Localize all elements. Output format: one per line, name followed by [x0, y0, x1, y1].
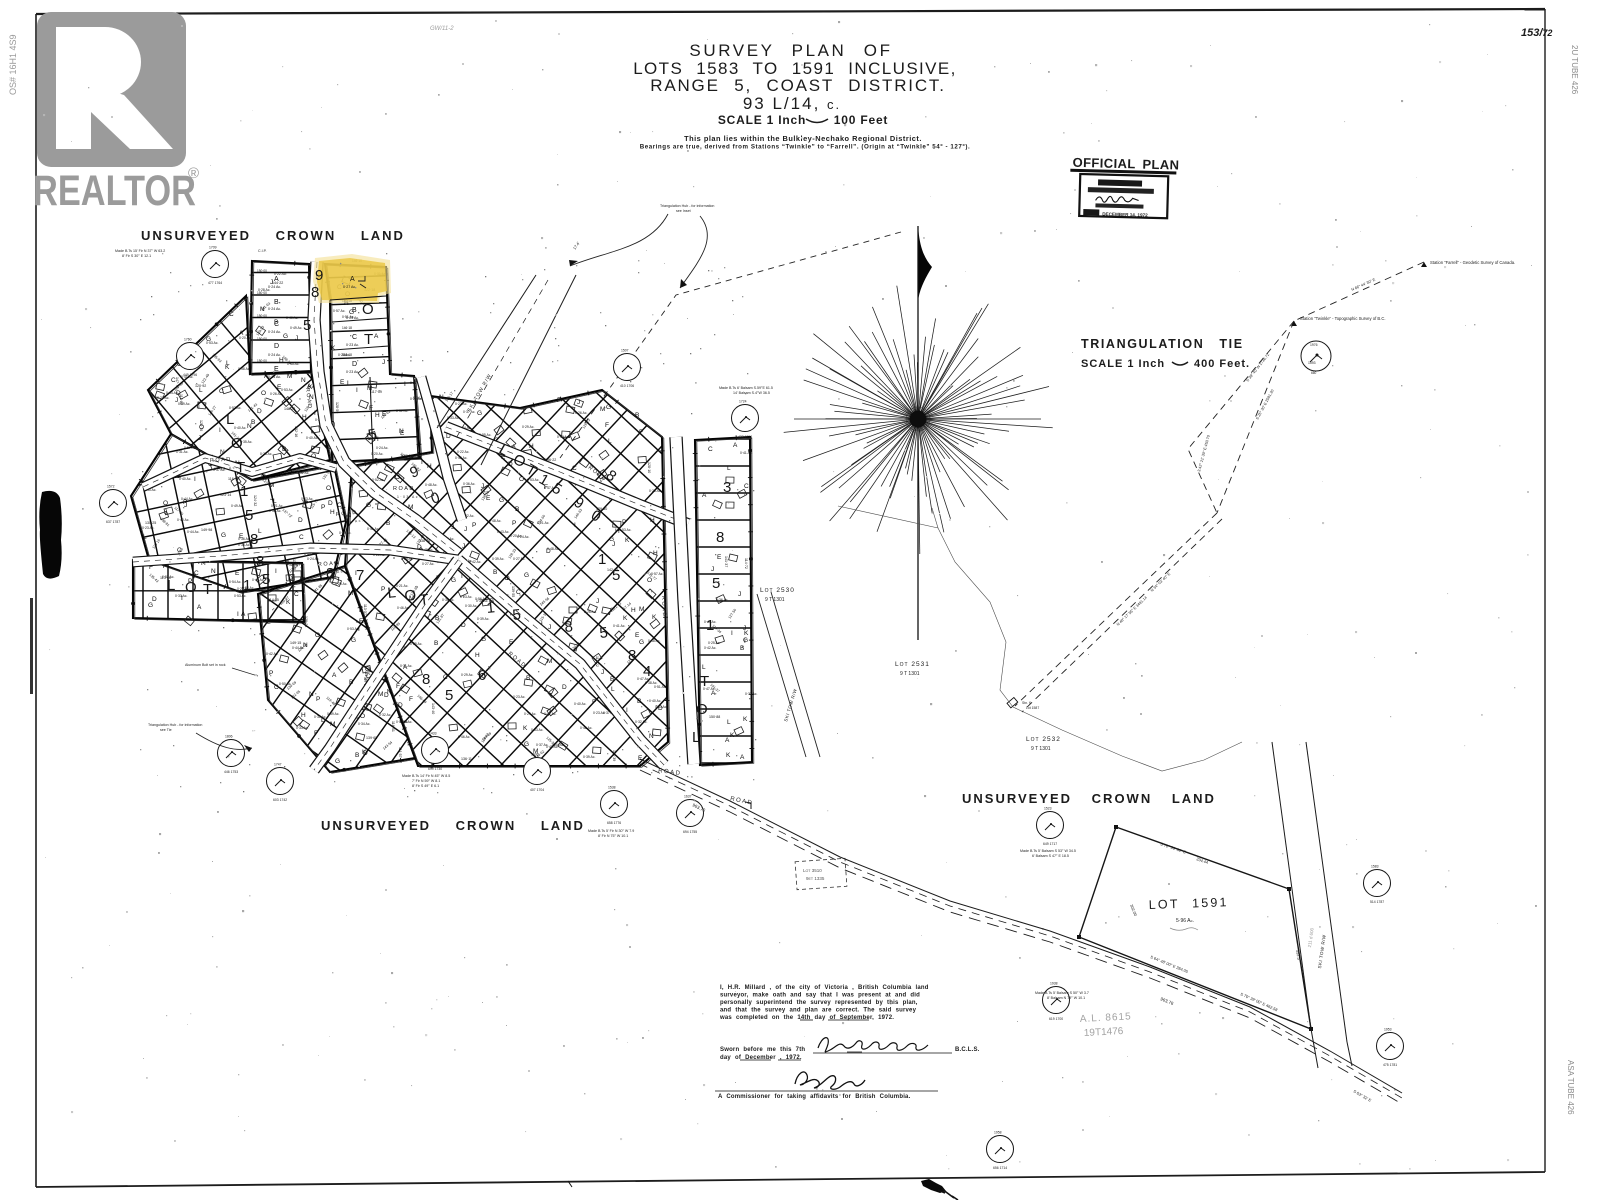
svg-text:I: I: [574, 522, 576, 529]
svg-text:0·52 Ac.: 0·52 Ac.: [229, 406, 241, 410]
svg-text:I: I: [744, 638, 746, 645]
svg-text:410 1706: 410 1706: [620, 384, 634, 388]
svg-text:O: O: [519, 476, 524, 483]
svg-text:A: A: [241, 611, 246, 618]
svg-text:5: 5: [612, 567, 620, 584]
svg-text:P: P: [622, 519, 626, 526]
svg-text:446 1753: 446 1753: [224, 770, 238, 774]
svg-text:0·23 Ac.: 0·23 Ac.: [593, 711, 605, 715]
svg-text:I: I: [261, 474, 263, 481]
svg-text:0·41 Ac.: 0·41 Ac.: [613, 624, 625, 628]
svg-text:E: E: [400, 430, 405, 437]
svg-text:L: L: [611, 686, 615, 693]
svg-text:I: I: [219, 427, 221, 434]
svg-text:T: T: [236, 459, 245, 476]
svg-text:B: B: [493, 569, 497, 576]
svg-text:P: P: [472, 522, 476, 529]
svg-text:C: C: [299, 534, 304, 541]
svg-text:0·48 Ac.: 0·48 Ac.: [425, 483, 437, 487]
svg-text:0·53 Ac.: 0·53 Ac.: [531, 728, 543, 732]
svg-text:113·22: 113·22: [595, 656, 599, 667]
svg-text:surveyor, make oath and say th: surveyor, make oath and say that I was p…: [720, 993, 920, 999]
svg-text:F: F: [557, 397, 561, 404]
svg-text:M: M: [600, 406, 605, 413]
svg-text:C: C: [219, 388, 224, 395]
svg-text:J: J: [270, 279, 273, 286]
svg-text:I: I: [356, 387, 358, 394]
svg-text:5: 5: [445, 687, 453, 704]
svg-text:4: 4: [643, 663, 651, 680]
svg-text:603 1742: 603 1742: [273, 798, 287, 802]
svg-text:O: O: [362, 301, 374, 318]
svg-text:L: L: [199, 387, 203, 394]
svg-text:132·16: 132·16: [294, 426, 298, 437]
svg-text:5: 5: [512, 606, 522, 624]
svg-text:B: B: [637, 698, 641, 705]
svg-text:Lot 1587: Lot 1587: [1026, 706, 1039, 710]
svg-text:0·54 Ac.: 0·54 Ac.: [229, 580, 241, 584]
svg-text:1·03 Ac.: 1·03 Ac.: [397, 495, 421, 499]
svg-text:0·40 Ac.: 0·40 Ac.: [306, 436, 318, 440]
svg-text:G: G: [524, 572, 529, 579]
svg-text:A: A: [725, 737, 730, 744]
svg-text:N: N: [211, 568, 216, 575]
svg-text:O: O: [326, 485, 331, 492]
svg-text:E: E: [239, 533, 244, 540]
svg-text:TRIANGULATION TIE: TRIANGULATION TIE: [1081, 337, 1244, 351]
svg-text:1: 1: [243, 577, 251, 594]
svg-text:C.I.P.: C.I.P.: [258, 249, 267, 253]
svg-text:1572: 1572: [107, 485, 115, 489]
svg-text:P: P: [316, 696, 320, 703]
svg-text:0·48 Ac.: 0·48 Ac.: [547, 547, 559, 551]
svg-text:T: T: [203, 581, 212, 598]
svg-text:Made B.Ts 5' Balsam S 50° W: Made B.Ts 5' Balsam S 50° W 3.7: [1035, 991, 1089, 995]
svg-text:I: I: [314, 410, 316, 417]
svg-text:0·24 Ac.: 0·24 Ac.: [524, 712, 536, 716]
svg-text:J: J: [601, 669, 604, 676]
svg-text:G: G: [148, 602, 153, 609]
svg-text:153/72: 153/72: [1521, 27, 1552, 39]
svg-text:658 1776: 658 1776: [607, 821, 621, 825]
svg-text:0·36 Ac.: 0·36 Ac.: [442, 598, 454, 602]
svg-text:0·23 Ac.: 0·23 Ac.: [346, 370, 359, 374]
svg-text:0·40 Ac.: 0·40 Ac.: [179, 477, 191, 481]
svg-text:G: G: [639, 639, 644, 646]
svg-text:E: E: [340, 379, 345, 386]
svg-text:D: D: [257, 408, 262, 415]
svg-text:0·22 Ac.: 0·22 Ac.: [274, 272, 286, 276]
svg-text:L: L: [143, 534, 147, 541]
svg-text:G: G: [477, 410, 482, 417]
svg-text:1: 1: [598, 551, 606, 568]
svg-text:2U TUBE 426: 2U TUBE 426: [1570, 45, 1579, 95]
svg-text:5: 5: [599, 624, 609, 642]
svg-text:Stn. K: Stn. K: [1022, 701, 1032, 705]
svg-text:111·57: 111·57: [398, 747, 402, 758]
svg-text:0·30 Ac.: 0·30 Ac.: [465, 604, 477, 608]
svg-text:I: I: [611, 607, 613, 614]
svg-text:0·40 Ac.: 0·40 Ac.: [455, 456, 467, 460]
svg-text:433 1714: 433 1714: [738, 435, 752, 439]
svg-text:0·23 Ac.: 0·23 Ac.: [346, 343, 359, 347]
svg-text:I: I: [194, 476, 196, 483]
svg-text:5: 5: [262, 571, 270, 588]
svg-text:1709: 1709: [209, 246, 217, 250]
svg-text:N: N: [247, 423, 252, 430]
svg-text:LOT 1591: LOT 1591: [1149, 895, 1229, 912]
svg-text:M: M: [330, 721, 335, 728]
svg-text:1724: 1724: [739, 400, 747, 404]
svg-text:0·29 Ac.: 0·29 Ac.: [461, 673, 473, 677]
svg-text:C: C: [352, 334, 357, 341]
svg-text:O: O: [315, 632, 320, 639]
svg-text:G: G: [283, 333, 288, 340]
svg-text:1747: 1747: [274, 763, 282, 767]
svg-text:T: T: [700, 673, 709, 690]
svg-text:0·53 Ac.: 0·53 Ac.: [234, 594, 246, 598]
svg-text:0·27 Ac.: 0·27 Ac.: [513, 557, 525, 561]
svg-text:150·00: 150·00: [257, 314, 267, 318]
svg-text:115·80: 115·80: [179, 394, 183, 405]
svg-text:93 L/14, c.: 93 L/14, c.: [743, 94, 841, 113]
svg-text:9 T 1301: 9 T 1301: [765, 597, 785, 603]
svg-text:400 Feet.: 400 Feet.: [1194, 358, 1250, 370]
svg-text:6' Balsam S 47° E 18.5: 6' Balsam S 47° E 18.5: [1032, 854, 1069, 858]
svg-text:REALTOR: REALTOR: [33, 167, 196, 214]
svg-text:H: H: [475, 652, 480, 659]
svg-text:O: O: [404, 587, 417, 605]
svg-text:B: B: [274, 319, 278, 326]
svg-text:407 1704: 407 1704: [530, 788, 544, 792]
svg-text:150·00: 150·00: [257, 359, 267, 363]
svg-text:8: 8: [256, 553, 264, 570]
svg-text:C: C: [443, 674, 448, 681]
svg-text:L: L: [167, 577, 175, 594]
svg-text:0·40 Ac.: 0·40 Ac.: [574, 702, 586, 706]
svg-text:475 1781: 475 1781: [1383, 1063, 1397, 1067]
svg-text:0·24 Ac.: 0·24 Ac.: [268, 375, 281, 379]
svg-text:0·43 Ac.: 0·43 Ac.: [339, 531, 351, 535]
svg-text:B: B: [355, 752, 359, 759]
svg-text:7' Fir N 59° W 8.1: 7' Fir N 59° W 8.1: [412, 779, 440, 783]
svg-text:699 1730: 699 1730: [428, 767, 442, 771]
svg-text:0·25 Ac.: 0·25 Ac.: [410, 642, 422, 646]
svg-text:Made B.Ts 14' Fir N 45° W 8: Made B.Ts 14' Fir N 45° W 8.5: [402, 774, 450, 778]
svg-text:K: K: [286, 599, 291, 606]
svg-text:B: B: [526, 675, 530, 682]
svg-text:0·42 Ac.: 0·42 Ac.: [266, 652, 278, 656]
svg-text:K: K: [523, 725, 528, 732]
svg-text:E: E: [359, 618, 364, 625]
svg-text:Made B.Ts 5' Balsam S 53° W: Made B.Ts 5' Balsam S 53° W 34.5: [1020, 849, 1076, 853]
svg-text:0·27 Ac.: 0·27 Ac.: [343, 285, 356, 289]
svg-text:RANGE 5, COAST DISTRICT.: RANGE 5, COAST DISTRICT.: [650, 76, 945, 95]
svg-text:Made B.Ts 6' Balsam S.59°E: Made B.Ts 6' Balsam S.59°E 61.5: [719, 386, 773, 390]
svg-text:O: O: [696, 701, 708, 718]
svg-text:1: 1: [706, 617, 714, 634]
svg-text:1806: 1806: [225, 735, 233, 739]
svg-text:0·39 Ac.: 0·39 Ac.: [477, 617, 489, 621]
svg-text:1760: 1760: [184, 338, 192, 342]
svg-text:L: L: [267, 619, 271, 626]
svg-text:14' Balsam S.4°W 36.5: 14' Balsam S.4°W 36.5: [733, 391, 770, 395]
svg-text:0·37 Ac.: 0·37 Ac.: [745, 692, 757, 696]
svg-text:1958: 1958: [994, 1131, 1002, 1135]
svg-text:J: J: [295, 335, 298, 342]
svg-text:K: K: [744, 630, 749, 637]
svg-text:0·44 Ac.: 0·44 Ac.: [166, 391, 178, 395]
svg-text:0·26 Ac.: 0·26 Ac.: [270, 392, 282, 396]
svg-text:E: E: [635, 632, 640, 639]
svg-text:I: I: [181, 595, 183, 602]
svg-text:G: G: [349, 309, 354, 316]
svg-text:J: J: [175, 397, 178, 404]
svg-text:637 1787: 637 1787: [106, 520, 120, 524]
svg-text:OS# 16H1 4S9: OS# 16H1 4S9: [8, 34, 18, 95]
svg-text:123·14: 123·14: [220, 493, 231, 497]
svg-text:E: E: [274, 366, 279, 373]
svg-text:0·46 Ac.: 0·46 Ac.: [580, 726, 592, 730]
svg-text:SCALE 1 Inch: SCALE 1 Inch: [718, 113, 806, 127]
svg-text:M: M: [547, 658, 552, 665]
svg-text:0·24 Ac.: 0·24 Ac.: [268, 307, 281, 311]
svg-text:E: E: [717, 554, 722, 561]
svg-text:D: D: [152, 596, 157, 603]
svg-text:L: L: [727, 465, 731, 472]
svg-text:O: O: [185, 579, 197, 596]
svg-text:D: D: [328, 500, 333, 507]
svg-text:150·88: 150·88: [709, 715, 720, 719]
svg-text:0·40 Ac.: 0·40 Ac.: [234, 426, 246, 430]
svg-text:1: 1: [486, 599, 496, 617]
svg-text:136·11: 136·11: [461, 757, 472, 761]
svg-text:G: G: [335, 758, 340, 765]
svg-text:J: J: [505, 575, 508, 582]
svg-text:A: A: [403, 664, 408, 671]
svg-text:8' Fir S 30° E 12.1: 8' Fir S 30° E 12.1: [122, 254, 151, 258]
svg-text:A: A: [740, 754, 745, 761]
svg-text:0·40 Ac.: 0·40 Ac.: [286, 316, 298, 320]
svg-text:649 1717: 649 1717: [1043, 842, 1057, 846]
svg-text:0·38 Ac.: 0·38 Ac.: [238, 367, 250, 371]
svg-text:This plan lies within the Bulk: This plan lies within the Bulkley-Nechak…: [684, 134, 922, 143]
svg-text:0·43 Ac.: 0·43 Ac.: [497, 530, 509, 534]
svg-text:C: C: [294, 591, 299, 598]
svg-text:M: M: [378, 691, 383, 698]
svg-text:J: J: [462, 543, 465, 550]
svg-text:A: A: [264, 373, 269, 380]
svg-text:1637: 1637: [684, 795, 692, 799]
svg-text:J: J: [382, 359, 385, 366]
svg-text:Station “Twinkle” - Topographi: Station “Twinkle” - Topographic Survey o…: [1300, 316, 1386, 321]
svg-text:K: K: [726, 752, 731, 759]
svg-text:Aluminum Bolt set in rock: Aluminum Bolt set in rock: [185, 663, 226, 667]
svg-text:124·32: 124·32: [253, 495, 257, 506]
svg-text:0·30 Ac.: 0·30 Ac.: [269, 509, 281, 513]
svg-text:8: 8: [326, 565, 334, 582]
svg-text:K: K: [743, 716, 748, 723]
svg-text:F: F: [409, 696, 413, 703]
svg-text:A Commissioner for taking affi: A Commissioner for taking affidavits for…: [718, 1094, 911, 1100]
svg-text:B: B: [274, 299, 279, 306]
svg-text:UNSURVEYED CROWN LAND: UNSURVEYED CROWN LAND: [962, 791, 1216, 806]
svg-text:M: M: [287, 373, 292, 380]
svg-text:H: H: [631, 607, 636, 614]
svg-text:B.C.L.S.: B.C.L.S.: [955, 1047, 980, 1053]
svg-text:A: A: [197, 604, 202, 611]
svg-text:1953: 1953: [1384, 1028, 1392, 1032]
svg-text:C: C: [708, 446, 713, 453]
svg-text:1976: 1976: [1310, 343, 1318, 347]
svg-text:K: K: [652, 614, 657, 621]
svg-text:K: K: [225, 364, 230, 371]
svg-text:GW/11-2: GW/11-2: [430, 26, 454, 32]
svg-text:8' Fir S 49° E 6.1: 8' Fir S 49° E 6.1: [412, 784, 439, 788]
svg-text:0·43 Ac.: 0·43 Ac.: [557, 435, 569, 439]
svg-text:B: B: [386, 520, 390, 527]
svg-text:100 Feet: 100 Feet: [834, 113, 888, 127]
svg-text:6: 6: [478, 667, 486, 684]
svg-text:H: H: [375, 412, 380, 419]
svg-text:and that the survey and plan a: and that the survey and plan are correct…: [720, 1008, 917, 1014]
svg-text:Bearings are true, derived fro: Bearings are true, derived from Stations…: [640, 144, 971, 151]
svg-text:P: P: [512, 520, 516, 527]
svg-text:H: H: [529, 443, 534, 450]
svg-text:128·76: 128·76: [199, 420, 203, 431]
svg-text:B: B: [610, 676, 614, 683]
svg-text:L: L: [727, 719, 731, 726]
svg-text:139·65: 139·65: [366, 736, 377, 740]
svg-text:0·21 Ac.: 0·21 Ac.: [271, 504, 283, 508]
svg-text:0·40 Ac.: 0·40 Ac.: [649, 699, 661, 703]
svg-text:SCALE 1 Inch: SCALE 1 Inch: [1081, 358, 1165, 370]
svg-text:0·41 Ac.: 0·41 Ac.: [740, 451, 752, 455]
svg-text:0·27 Ac.: 0·27 Ac.: [422, 562, 434, 566]
svg-text:114·72: 114·72: [744, 558, 748, 569]
svg-text:H: H: [650, 517, 655, 524]
svg-text:G: G: [351, 637, 356, 644]
svg-text:0·57 Ac.: 0·57 Ac.: [333, 309, 345, 313]
svg-text:I: I: [198, 404, 200, 411]
svg-text:1583: 1583: [1371, 865, 1379, 869]
svg-text:120·92: 120·92: [195, 384, 206, 388]
svg-text:UNSURVEYED CROWN LAND: UNSURVEYED CROWN LAND: [141, 228, 405, 243]
svg-text:0·31 Ac.: 0·31 Ac.: [396, 409, 408, 413]
svg-text:L: L: [387, 584, 397, 602]
svg-text:0·44 Ac.: 0·44 Ac.: [187, 530, 199, 534]
svg-text:J: J: [451, 524, 454, 531]
svg-text:0·49 Ac.: 0·49 Ac.: [290, 326, 302, 330]
svg-text:0·42 Ac.: 0·42 Ac.: [704, 646, 716, 650]
svg-text:9 T 1301: 9 T 1301: [900, 671, 920, 677]
svg-text:G: G: [481, 636, 486, 643]
svg-text:K: K: [623, 615, 628, 622]
svg-text:M: M: [269, 482, 274, 489]
svg-text:113·37: 113·37: [363, 604, 367, 615]
svg-text:N: N: [309, 691, 314, 698]
svg-text:116·91: 116·91: [228, 477, 239, 481]
svg-text:A: A: [332, 672, 337, 679]
svg-text:C: C: [744, 483, 749, 490]
svg-text:0·44 Ac.: 0·44 Ac.: [181, 497, 193, 501]
svg-text:114·15: 114·15: [268, 598, 279, 602]
svg-text:E: E: [235, 570, 240, 577]
svg-text:130·25: 130·25: [145, 521, 156, 525]
svg-text:L: L: [692, 729, 700, 746]
svg-text:E: E: [638, 755, 643, 762]
svg-text:O: O: [163, 500, 168, 507]
svg-text:I: I: [237, 611, 239, 618]
svg-text:L: L: [321, 717, 325, 724]
svg-text:A: A: [350, 276, 355, 283]
svg-text:J: J: [464, 526, 467, 533]
svg-text:0·46 Ac.: 0·46 Ac.: [397, 606, 409, 610]
svg-text:J: J: [711, 566, 714, 573]
svg-text:D: D: [562, 684, 567, 691]
svg-text:1593: 1593: [1308, 361, 1316, 365]
svg-text:8' Fir N 75° W 10.1: 8' Fir N 75° W 10.1: [598, 834, 628, 838]
svg-text:143·40: 143·40: [431, 703, 435, 714]
svg-text:H: H: [302, 414, 307, 421]
svg-text:148·28: 148·28: [284, 407, 295, 411]
svg-text:L: L: [226, 411, 234, 428]
svg-text:149·15: 149·15: [290, 641, 301, 645]
svg-text:1: 1: [240, 483, 248, 500]
svg-text:0·23 Ac.: 0·23 Ac.: [142, 526, 154, 530]
svg-text:0·52 Ac.: 0·52 Ac.: [372, 478, 384, 482]
svg-text:F: F: [314, 730, 318, 737]
svg-text:K: K: [730, 732, 735, 739]
svg-text:0·48 Ac.: 0·48 Ac.: [648, 639, 660, 643]
svg-text:449 1796: 449 1796: [183, 373, 197, 377]
svg-text:A: A: [702, 492, 707, 499]
svg-text:H: H: [615, 528, 620, 535]
svg-text:0·22 Ac.: 0·22 Ac.: [455, 402, 467, 406]
svg-text:0·23 Ac.: 0·23 Ac.: [260, 452, 272, 456]
svg-text:LOT 2532: LOT 2532: [1026, 736, 1061, 743]
svg-text:I: I: [461, 573, 463, 580]
svg-text:0·26 Ac.: 0·26 Ac.: [575, 411, 587, 415]
svg-text:8' Balsam N 79° W 10.1: 8' Balsam N 79° W 10.1: [1047, 996, 1085, 1000]
svg-text:0·29 Ac.: 0·29 Ac.: [522, 425, 534, 429]
svg-text:LOT 3510: LOT 3510: [803, 868, 822, 873]
svg-text:H: H: [427, 463, 432, 470]
svg-text:0·22 Ac.: 0·22 Ac.: [457, 450, 469, 454]
svg-text:150·00: 150·00: [257, 337, 267, 341]
svg-text:L: L: [347, 380, 351, 387]
svg-text:0·55 Ac.: 0·55 Ac.: [400, 720, 412, 724]
svg-text:K: K: [331, 345, 336, 352]
svg-text:I: I: [275, 568, 277, 575]
svg-text:B: B: [282, 446, 286, 453]
svg-text:Made B.Ts 15' Fir N 37° W 6: Made B.Ts 15' Fir N 37° W 63.2: [115, 249, 165, 253]
svg-text:N: N: [301, 377, 306, 384]
svg-text:F: F: [639, 429, 643, 436]
svg-text:ROAD: ROAD: [660, 596, 667, 618]
svg-text:660: 660: [1311, 371, 1317, 375]
svg-text:see Tie: see Tie: [160, 728, 172, 732]
svg-text:9 T 1301: 9 T 1301: [1031, 746, 1051, 752]
svg-text:9: 9: [315, 267, 323, 284]
svg-text:8: 8: [422, 671, 430, 688]
svg-text:8: 8: [628, 647, 636, 664]
svg-text:1523: 1523: [1044, 807, 1052, 811]
svg-text:C: C: [229, 311, 234, 318]
svg-text:7: 7: [356, 567, 364, 584]
svg-text:0·34 Ac.: 0·34 Ac.: [358, 722, 370, 726]
svg-text:H: H: [330, 509, 335, 516]
